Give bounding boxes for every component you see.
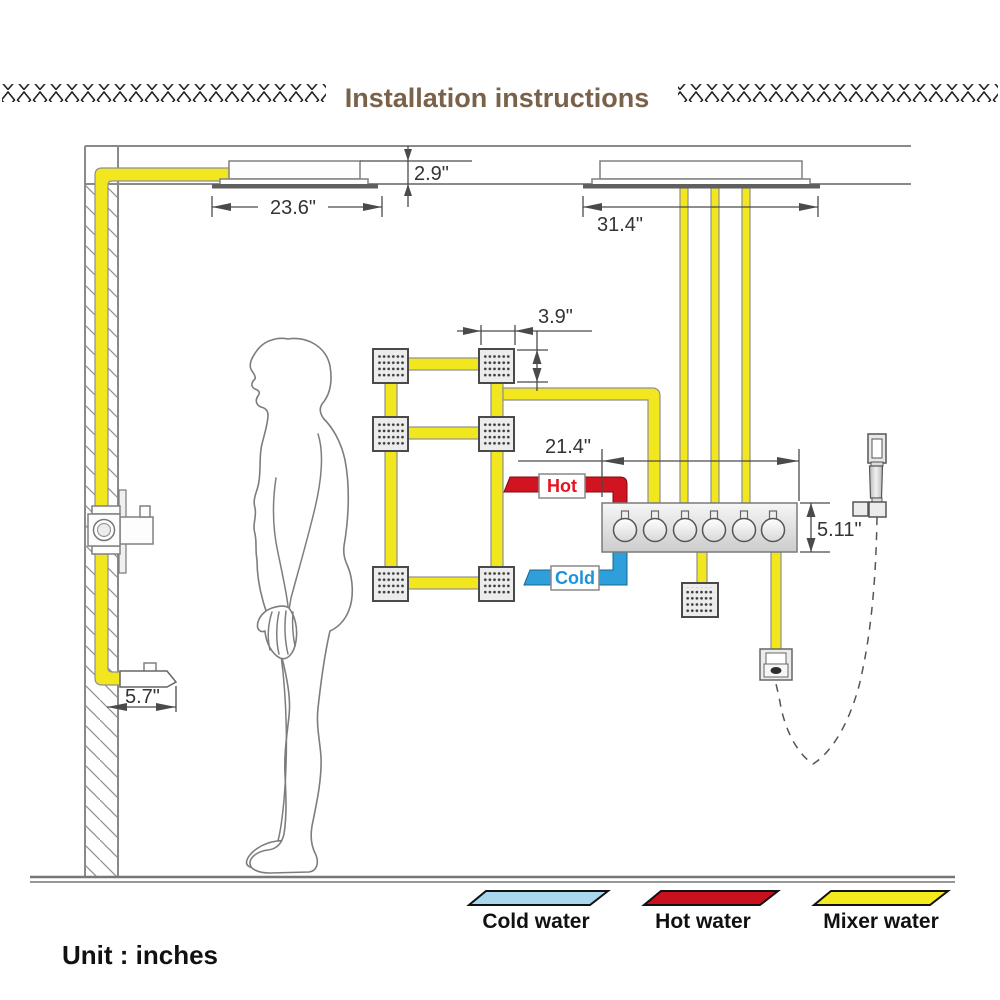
body-outline (250, 338, 352, 873)
body-jet (479, 417, 514, 451)
pipe-jets-bottom (405, 577, 482, 589)
valve-tab (140, 506, 150, 517)
mixer-knob (703, 519, 726, 542)
shower-hose-dashed (776, 517, 877, 764)
handheld-face (872, 439, 882, 458)
bracket-left (853, 502, 868, 516)
right-shower-head (583, 161, 820, 189)
legend: Cold water Hot water Mixer water (469, 891, 948, 933)
dim-left-head-width: 23.6" (212, 195, 382, 219)
right-head-body (600, 161, 802, 179)
page-title: Installation instructions (345, 83, 650, 113)
handheld-handle (870, 466, 883, 498)
mixer-valve (602, 503, 797, 552)
tub-spout (120, 663, 176, 687)
dim-right-head-width: 31.4" (583, 196, 818, 236)
body-jet (373, 567, 408, 601)
pipe-jets-top (405, 358, 482, 370)
left-head-body (229, 161, 360, 179)
hot-tag: Hot (539, 474, 585, 498)
dim-valve-offset-label: 21.4" (545, 436, 591, 458)
dim-left-head-width-label: 23.6" (270, 197, 316, 219)
installation-diagram: Installation instructions (0, 0, 1000, 1000)
dim-jet-size: 3.9" (457, 306, 592, 391)
pipe-head-riser-1 (680, 188, 688, 503)
legend-label-cold: Cold water (482, 910, 589, 933)
mixer-knob (674, 519, 697, 542)
left-shower-head (212, 161, 378, 189)
dim-right-head-width-label: 31.4" (597, 214, 643, 236)
cold-tag-label: Cold (555, 568, 595, 588)
legend-label-hot: Hot water (655, 910, 751, 933)
zigzag-divider-left (2, 84, 326, 102)
body-jet (373, 417, 408, 451)
hot-tag-label: Hot (547, 476, 577, 496)
dim-jet-size-label: 3.9" (538, 306, 573, 328)
dim-head-recess-height: 2.9" (360, 146, 472, 207)
legend-swatch-hot (644, 891, 778, 905)
outlet-hole (771, 667, 782, 674)
body-jet (682, 583, 718, 617)
handheld-shower (853, 434, 886, 517)
diagram-canvas: Installation instructions (0, 0, 1000, 1000)
dim-valve-height-label: 5.11" (817, 519, 862, 541)
pipe-valve-to-jet (697, 552, 707, 583)
dim-spout-length-label: 5.7" (125, 686, 160, 708)
zigzag-divider-right (678, 84, 998, 102)
cold-tag: Cold (551, 566, 599, 590)
pipe-valve-to-outlet (771, 552, 781, 650)
valve-bottom-flange (92, 546, 120, 554)
unit-note: Unit : inches (62, 940, 218, 970)
body-jet (479, 349, 514, 383)
valve-cartridge (120, 517, 153, 544)
pipe-jets-right-riser (491, 381, 503, 570)
legend-swatch-cold (469, 891, 608, 905)
mixer-knob (644, 519, 667, 542)
spout-body (120, 671, 176, 687)
dim-head-recess-label: 2.9" (414, 163, 449, 185)
hose-outlet (760, 649, 792, 680)
legend-swatch-mixer (814, 891, 948, 905)
pipe-jets-mid (405, 427, 482, 439)
body-jet (479, 567, 514, 601)
legend-label-mixer: Mixer water (823, 910, 939, 933)
pipe-head-riser-3 (742, 188, 750, 503)
mixer-knob (762, 519, 785, 542)
pipe-jets-left-riser (385, 380, 397, 570)
header: Installation instructions (2, 83, 998, 113)
body-jet (373, 349, 408, 383)
mixer-knob (614, 519, 637, 542)
outlet-top (766, 653, 786, 664)
right-head-base (583, 184, 820, 189)
mixer-knob (733, 519, 756, 542)
person-silhouette (246, 338, 352, 873)
valve-knob-center (98, 524, 111, 537)
left-head-base (212, 184, 378, 189)
valve-top-flange (92, 506, 120, 514)
mixer-water-pipes (95, 168, 781, 685)
pipe-head-riser-2 (711, 188, 719, 503)
bracket-right (869, 502, 886, 517)
